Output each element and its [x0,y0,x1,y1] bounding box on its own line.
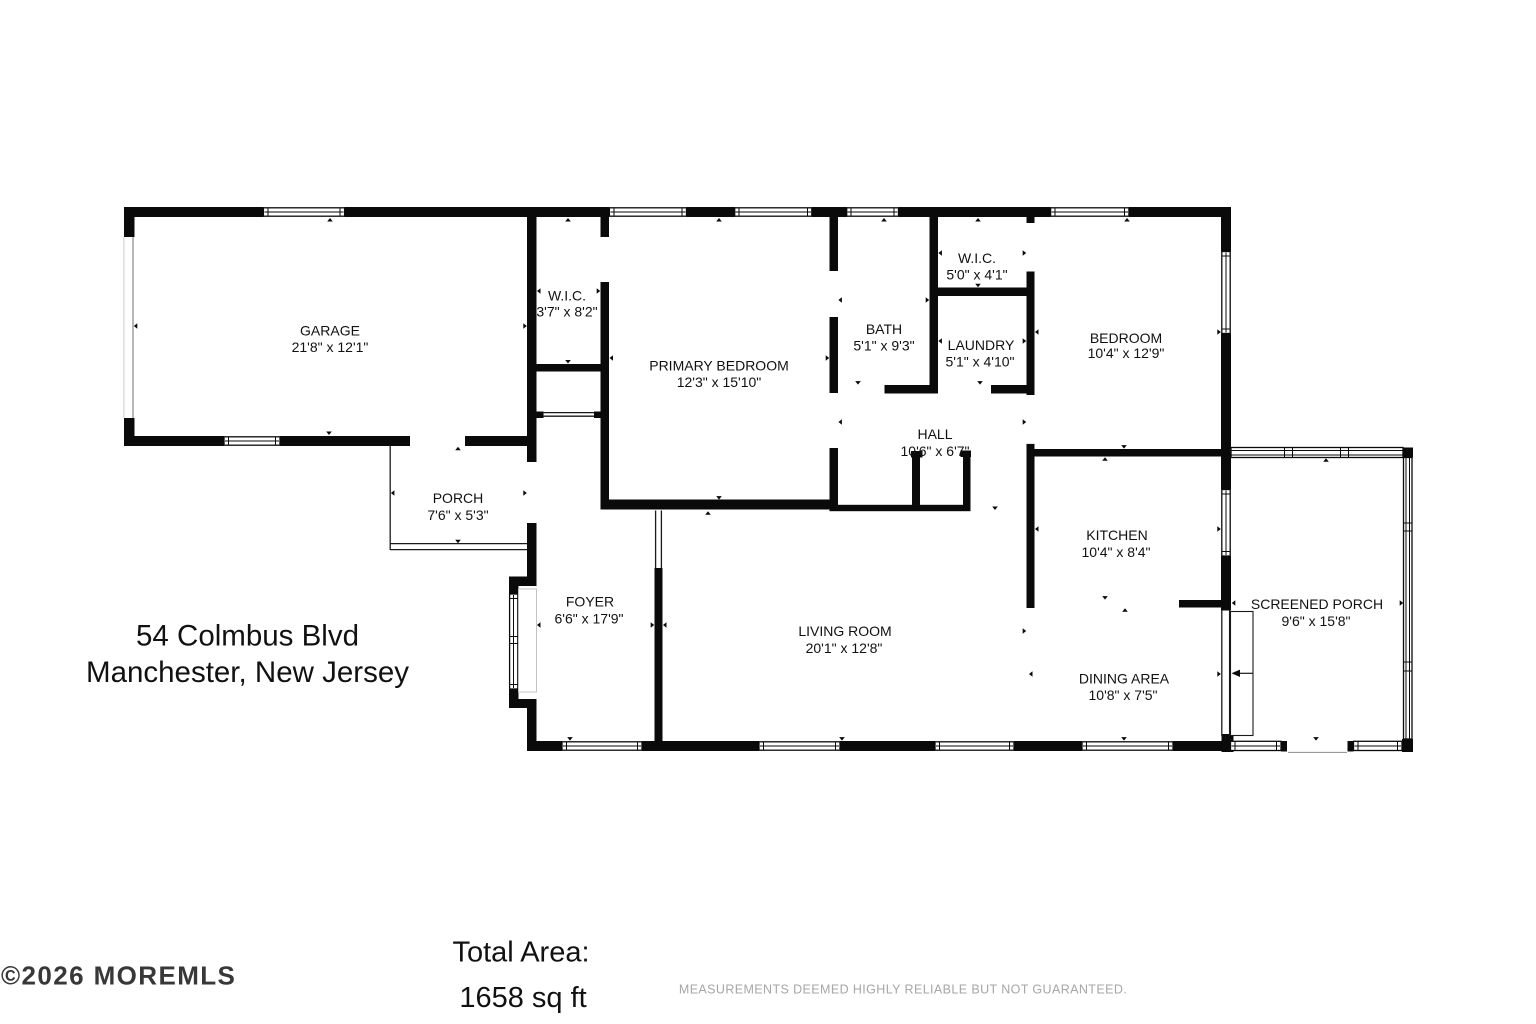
svg-text:LIVING ROOM: LIVING ROOM [798,623,891,639]
svg-text:HALL: HALL [917,426,952,442]
svg-text:5'0" x 4'1": 5'0" x 4'1" [946,267,1007,283]
svg-text:MEASUREMENTS DEEMED HIGHLY REL: MEASUREMENTS DEEMED HIGHLY RELIABLE BUT … [679,983,1127,997]
svg-text:LAUNDRY: LAUNDRY [948,337,1015,353]
svg-text:10'6" x 6'7": 10'6" x 6'7" [901,443,970,459]
svg-text:KITCHEN: KITCHEN [1086,527,1147,543]
svg-text:©2026 MOREMLS: ©2026 MOREMLS [1,961,236,991]
svg-text:Total Area:: Total Area: [452,937,589,969]
svg-text:W.I.C.: W.I.C. [958,250,996,266]
svg-text:DINING AREA: DINING AREA [1079,671,1170,687]
svg-text:10'4" x 8'4": 10'4" x 8'4" [1082,544,1151,560]
svg-text:10'4" x 12'9": 10'4" x 12'9" [1088,345,1165,361]
svg-text:21'8" x 12'1": 21'8" x 12'1" [292,339,369,355]
svg-text:PRIMARY BEDROOM: PRIMARY BEDROOM [649,358,789,374]
svg-text:3'7" x 8'2": 3'7" x 8'2" [536,304,597,320]
svg-text:GARAGE: GARAGE [300,323,360,339]
svg-text:5'1" x 4'10": 5'1" x 4'10" [946,354,1015,370]
svg-text:Manchester, New Jersey: Manchester, New Jersey [86,656,409,689]
svg-text:SCREENED PORCH: SCREENED PORCH [1251,596,1383,612]
svg-text:BEDROOM: BEDROOM [1090,330,1162,346]
svg-text:6'6" x 17'9": 6'6" x 17'9" [555,611,624,627]
svg-text:12'3" x 15'10": 12'3" x 15'10" [677,374,762,390]
svg-text:BATH: BATH [866,321,902,337]
svg-text:20'1" x 12'8": 20'1" x 12'8" [806,640,883,656]
svg-text:7'6" x 5'3": 7'6" x 5'3" [427,507,488,523]
svg-text:FOYER: FOYER [566,594,614,610]
svg-text:9'6" x 15'8": 9'6" x 15'8" [1282,613,1351,629]
svg-text:5'1" x 9'3": 5'1" x 9'3" [853,338,914,354]
svg-text:10'8" x 7'5": 10'8" x 7'5" [1089,687,1158,703]
svg-text:1658 sq ft: 1658 sq ft [459,982,586,1014]
svg-text:PORCH: PORCH [433,490,484,506]
svg-text:W.I.C.: W.I.C. [548,288,586,304]
svg-text:54 Colmbus Blvd: 54 Colmbus Blvd [136,620,359,653]
